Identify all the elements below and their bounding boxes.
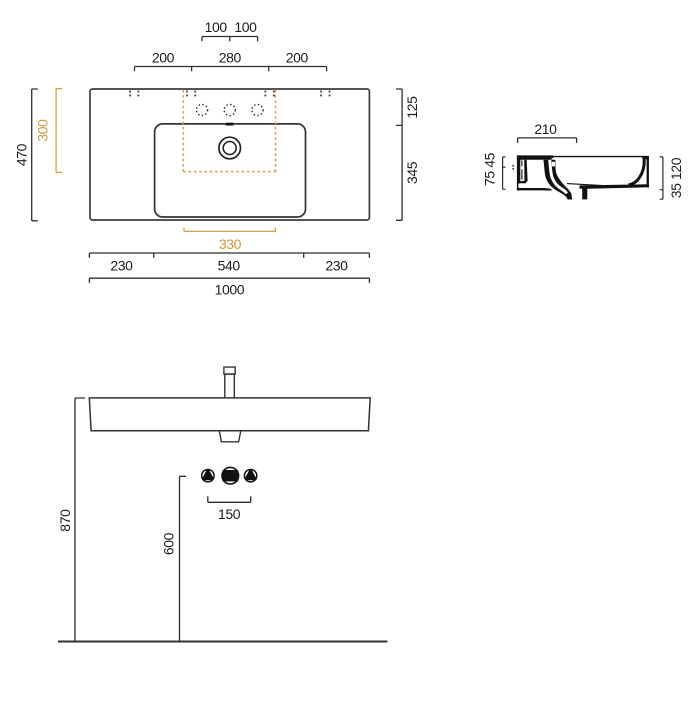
svg-text:230: 230 — [110, 257, 133, 273]
svg-text:470: 470 — [14, 143, 30, 166]
svg-text:870: 870 — [57, 509, 73, 532]
svg-text:150: 150 — [218, 506, 241, 522]
svg-text:210: 210 — [534, 121, 557, 137]
svg-text:200: 200 — [286, 50, 309, 66]
svg-text:35 120: 35 120 — [668, 157, 684, 198]
svg-text:100: 100 — [234, 19, 257, 35]
svg-text:75 45: 75 45 — [481, 152, 497, 186]
svg-text:125: 125 — [404, 96, 420, 119]
svg-text:280: 280 — [219, 50, 242, 66]
svg-text:540: 540 — [218, 257, 241, 273]
svg-text:330: 330 — [219, 236, 242, 252]
svg-text:600: 600 — [161, 532, 177, 555]
svg-text:345: 345 — [404, 161, 420, 184]
svg-text:300: 300 — [35, 119, 51, 142]
svg-text:200: 200 — [152, 50, 175, 66]
svg-text:1000: 1000 — [215, 282, 245, 298]
svg-text:100: 100 — [205, 19, 228, 35]
svg-text:230: 230 — [325, 257, 348, 273]
